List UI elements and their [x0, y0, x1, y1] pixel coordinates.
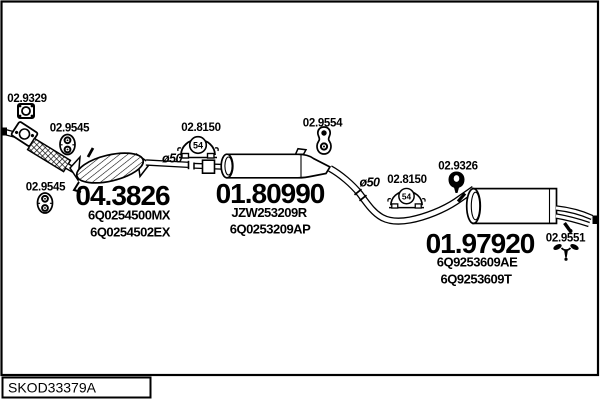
rear-grommet-label: 02.9326: [438, 161, 477, 173]
pipe-diameter-2: ø50: [359, 176, 380, 190]
gasket-label: 02.9329: [7, 93, 46, 105]
clamp-2-size: 54: [402, 192, 412, 201]
rear-bracket-label: 02.9551: [546, 233, 586, 245]
left-border-connector: [2, 128, 8, 136]
catalyst-oe-1: 6Q0254500MX: [88, 208, 171, 223]
rubber-hanger-icon-2: [38, 193, 53, 213]
hanger-2-label: 02.9545: [26, 182, 66, 194]
catalyst-part-number: 04.3826: [75, 180, 170, 211]
mid-silencer-oe-1: JZW253209R: [231, 205, 307, 220]
mid-silencer-oe-2: 6Q0253209AP: [230, 222, 311, 237]
rear-silencer-oe-2: 6Q9253609T: [441, 272, 512, 287]
diagram-canvas: 54 54 02.9329 02.9545 02.9545 02.8150 ø5…: [0, 0, 600, 400]
footer-code-box: SKOD33379A: [3, 378, 151, 398]
hanger-1-label: 02.9545: [50, 123, 90, 135]
exhaust-system-diagram: 54 54 02.9329 02.9545 02.9545 02.8150 ø5…: [0, 0, 600, 400]
pipe-diameter-1: ø50: [162, 152, 183, 166]
rubber-hanger-icon-1: [60, 135, 75, 155]
clamp-1-label: 02.8150: [181, 122, 220, 134]
clamp-2-label: 02.8150: [387, 174, 426, 186]
rear-silencer-oe-1: 6Q9253609AE: [437, 255, 518, 270]
clamp-1-size: 54: [193, 141, 203, 151]
drawing-code: SKOD33379A: [8, 380, 97, 396]
catalyst-oe-2: 6Q0254502EX: [90, 225, 171, 240]
mid-hanger-label: 02.9554: [303, 118, 343, 130]
gasket-icon: [18, 104, 34, 118]
mid-hanger-icon: [317, 127, 331, 154]
right-border-connector: [593, 216, 599, 225]
